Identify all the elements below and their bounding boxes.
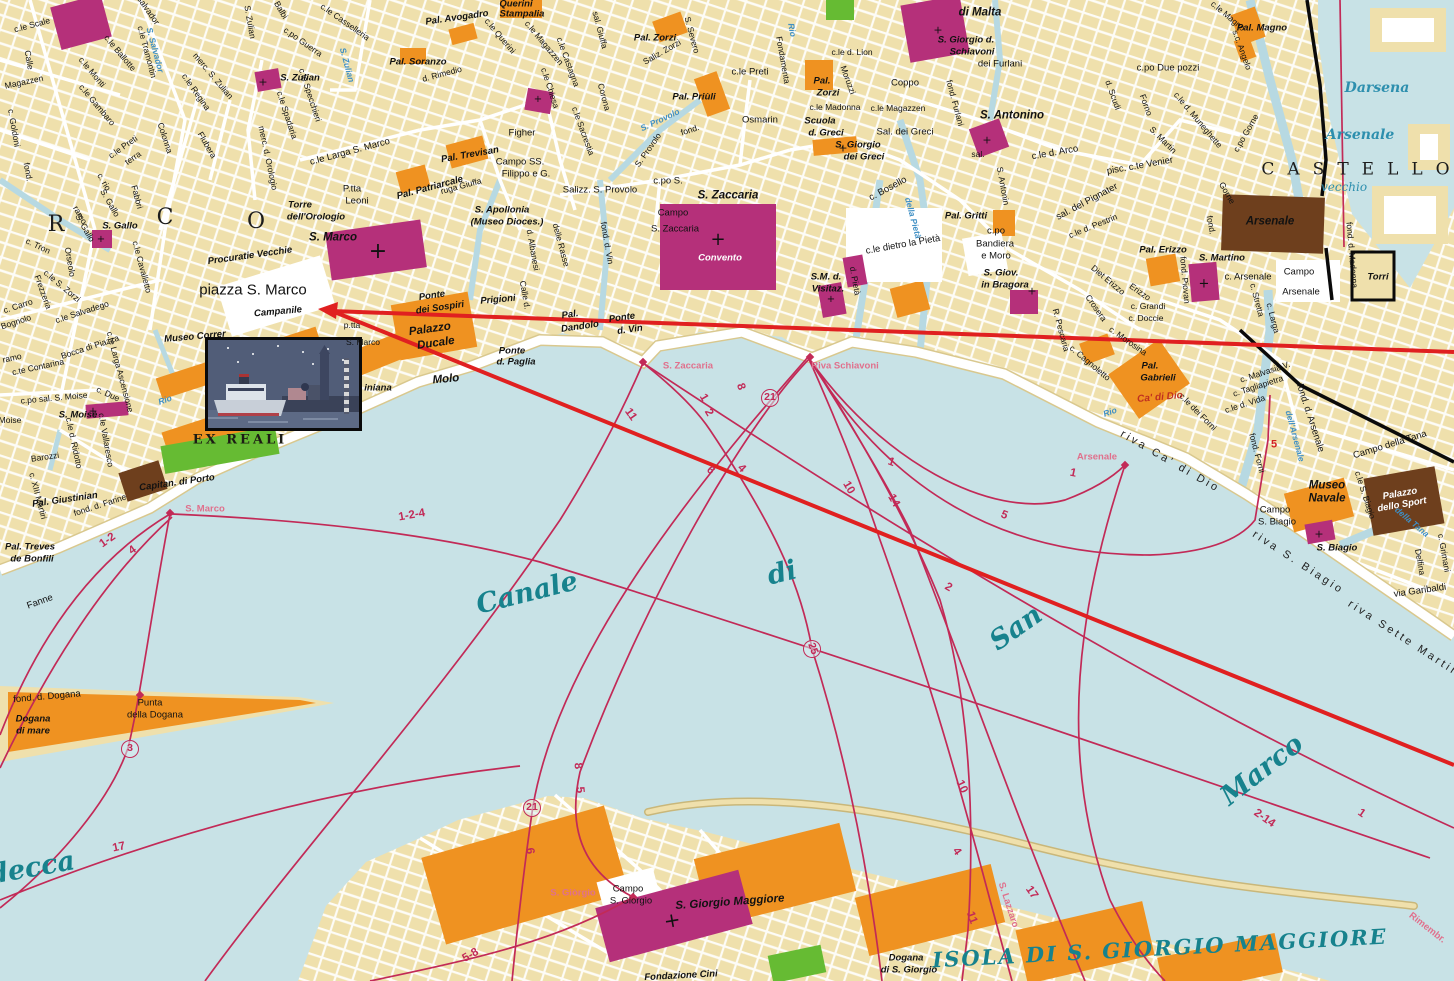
church-cross-icon: + bbox=[982, 135, 991, 146]
map-text-label: Pal. bbox=[814, 76, 831, 86]
photo-inset-art bbox=[208, 340, 359, 428]
church-cross-icon: + bbox=[1027, 286, 1036, 297]
map-text-label: dei Furlani bbox=[978, 59, 1022, 69]
route-number-label: 21 bbox=[523, 799, 541, 817]
ferry-stop-label: S. Zaccaria bbox=[663, 361, 713, 371]
route-number-label: 6 bbox=[523, 847, 535, 854]
map-text-label: p.tta bbox=[344, 321, 361, 330]
map-text-label: di mare bbox=[16, 726, 50, 736]
map-text-label: c. Arsenale bbox=[1225, 272, 1272, 282]
map-text-label: de Bonfili bbox=[10, 554, 53, 564]
district-letter-label: C bbox=[157, 207, 174, 229]
map-text-label: Arsenale bbox=[1282, 287, 1320, 297]
map-text-label: S. Apollonia bbox=[475, 205, 530, 215]
map-text-label: Leoni bbox=[345, 196, 368, 206]
map-text-label: S. Marco bbox=[346, 338, 380, 347]
map-text-label: Museo bbox=[1309, 480, 1345, 492]
church-cross-icon: + bbox=[662, 909, 682, 932]
map-text-label: iniana bbox=[364, 383, 391, 393]
map-text-label: Bandiera bbox=[976, 239, 1014, 249]
district-letter-label: CASTELLO bbox=[1261, 162, 1454, 179]
map-text-label: di S. Giorgio bbox=[881, 965, 937, 975]
map-text-label: P.tta bbox=[343, 184, 361, 194]
map-text-label: Pal. Gritti bbox=[945, 211, 987, 221]
map-text-label: Gabrieli bbox=[1140, 373, 1175, 383]
route-number-label: 8 bbox=[571, 762, 583, 769]
church-cross-icon: + bbox=[933, 25, 942, 36]
venice-map: RCOCASTELLOCanalediSanMarcodeccaDarsenaA… bbox=[0, 0, 1454, 981]
map-text-label: sal. bbox=[971, 150, 984, 159]
map-text-label: d. Greci bbox=[808, 128, 843, 138]
map-text-label: dei Greci bbox=[844, 152, 885, 162]
map-text-label: Zorzi bbox=[817, 88, 840, 98]
water-name-label: vecchio bbox=[1321, 181, 1367, 193]
church-cross-icon: + bbox=[838, 143, 847, 154]
map-text-label: in Bragora bbox=[981, 280, 1029, 290]
ferry-stop-label: Riva Schiavoni bbox=[811, 361, 879, 371]
map-text-label: Pal. Soranzo bbox=[389, 57, 446, 67]
map-text-label: di Malta bbox=[959, 7, 1002, 19]
water-name-label: Darsena bbox=[1345, 81, 1410, 95]
map-text-label: S. Giorgio bbox=[610, 896, 652, 906]
map-text-label: c.le Preti bbox=[732, 67, 769, 77]
map-text-label: Visitaz. bbox=[812, 284, 844, 294]
map-text-label: Campo bbox=[1284, 267, 1315, 277]
map-text-label: fond. bbox=[22, 162, 34, 182]
map-text-label: della Dogana bbox=[127, 710, 183, 720]
map-text-label: S. Biagio bbox=[1258, 517, 1296, 527]
map-text-label: c.po Due pozzi bbox=[1137, 63, 1200, 73]
map-text-label: Coppo bbox=[891, 78, 919, 88]
map-text-label: Arsenale bbox=[1246, 216, 1295, 228]
map-text-label: c.le d. Lion bbox=[831, 48, 872, 57]
map-text-label: Campo bbox=[613, 884, 644, 894]
map-text-label: c.po S. bbox=[653, 176, 683, 186]
church-cross-icon: + bbox=[1199, 278, 1210, 291]
map-text-label: S. Antonino bbox=[980, 110, 1044, 122]
map-text-label: Osmarin bbox=[742, 115, 778, 125]
map-text-label: Ponte bbox=[499, 346, 525, 356]
map-text-label: Filippo e G. bbox=[502, 169, 551, 179]
map-text-label: e Moro bbox=[981, 251, 1011, 261]
map-text-label: Moise bbox=[0, 416, 21, 425]
map-text-label: Rio bbox=[787, 23, 798, 38]
district-letter-label: R bbox=[48, 214, 65, 236]
map-text-label: Fondazione Cini bbox=[644, 969, 718, 981]
water-name-label: Arsenale bbox=[1326, 128, 1395, 142]
church-cross-icon: + bbox=[369, 241, 387, 263]
map-text-label: Scuola bbox=[804, 116, 835, 126]
map-text-label: EX REALI bbox=[193, 434, 288, 447]
map-text-label: Salizz. S. Provolo bbox=[563, 185, 637, 195]
map-text-label: S. Gallo bbox=[102, 221, 137, 231]
map-text-label: S. Giov. bbox=[984, 268, 1019, 278]
map-text-label: Torri bbox=[1367, 272, 1388, 282]
map-text-label: Convento bbox=[698, 253, 742, 263]
church-cross-icon: + bbox=[97, 235, 105, 245]
map-text-label: Molo bbox=[432, 373, 460, 387]
route-number-label: 3 bbox=[121, 740, 139, 758]
church-cross-icon: + bbox=[710, 231, 725, 249]
map-text-label: Calle bbox=[23, 50, 35, 71]
map-text-label: Dogana bbox=[16, 714, 51, 724]
map-text-label: Campo bbox=[658, 208, 689, 218]
map-text-label: 5 bbox=[1271, 440, 1277, 451]
church-cross-icon: + bbox=[827, 295, 835, 305]
dock-inner bbox=[1382, 18, 1434, 42]
map-text-label: Campo SS. bbox=[496, 157, 545, 167]
church-cross-icon: + bbox=[88, 406, 97, 417]
map-text-label: (Museo Dioces.) bbox=[471, 217, 544, 227]
map-text-label: dell'Orologio bbox=[287, 212, 345, 222]
ferry-stop-label: S. Giòrgio bbox=[550, 888, 595, 898]
ferry-stop-label: Arsenale bbox=[1077, 452, 1117, 462]
district-letter-label: O bbox=[247, 211, 265, 233]
ferry-stop-label: S. Marco bbox=[185, 504, 225, 514]
map-text-label: Navale bbox=[1308, 493, 1345, 505]
map-text-label: Pal. bbox=[1142, 361, 1159, 371]
map-text-label: Pal. Priùli bbox=[672, 92, 715, 102]
map-text-label: c.le Madonna bbox=[809, 103, 860, 112]
map-text-label: S. Zaccaria bbox=[651, 224, 699, 234]
map-text-label: Pal. Treves bbox=[5, 542, 55, 552]
map-text-label: Sal. dei Greci bbox=[876, 127, 933, 137]
map-text-label: S. Marco bbox=[309, 232, 357, 244]
church-cross-icon: + bbox=[534, 95, 542, 105]
map-text-label: c.le Magazzen bbox=[871, 104, 926, 113]
map-text-label: Figher bbox=[509, 128, 536, 138]
map-text-label: Torre bbox=[288, 200, 312, 210]
map-text-label: Pal. bbox=[561, 309, 579, 321]
route-number-label: 21 bbox=[761, 389, 779, 407]
map-text-label: Dogana bbox=[889, 953, 924, 963]
photo-inset bbox=[205, 337, 362, 431]
map-text-label: S. Biagio bbox=[1317, 543, 1358, 553]
landmark-building bbox=[1146, 254, 1180, 287]
map-text-label: Pal. Erizzo bbox=[1139, 245, 1187, 255]
church-cross-icon: + bbox=[258, 77, 267, 88]
route-number-label: 5 bbox=[573, 786, 585, 793]
water-name-label: di bbox=[765, 556, 800, 589]
church-cross-icon: + bbox=[1314, 529, 1323, 540]
map-text-label: S. Martino bbox=[1199, 253, 1245, 263]
map-text-label: fond. bbox=[1205, 215, 1217, 235]
map-text-label: Campo bbox=[1260, 505, 1291, 515]
park bbox=[826, 0, 854, 20]
map-text-label: d. Paglia bbox=[496, 357, 535, 367]
map-text-label: piazza S. Marco bbox=[199, 283, 307, 298]
dock-inner bbox=[1384, 196, 1436, 234]
map-text-label: c. Grandi bbox=[1131, 302, 1166, 311]
inset-mooring-pole bbox=[344, 358, 349, 414]
map-text-label: S. Zaccaria bbox=[698, 190, 759, 202]
map-text-label: c.po bbox=[987, 226, 1005, 236]
map-text-label: c. Doccie bbox=[1129, 314, 1164, 323]
map-text-label: S.M. d. bbox=[811, 272, 842, 282]
dock-inner bbox=[1420, 134, 1438, 160]
map-text-label: S. Giorgio d. bbox=[938, 35, 994, 45]
map-text-label: Schiavoni bbox=[950, 47, 995, 57]
map-text-label: Stampalia bbox=[500, 9, 545, 19]
map-text-label: Punta bbox=[138, 698, 163, 708]
